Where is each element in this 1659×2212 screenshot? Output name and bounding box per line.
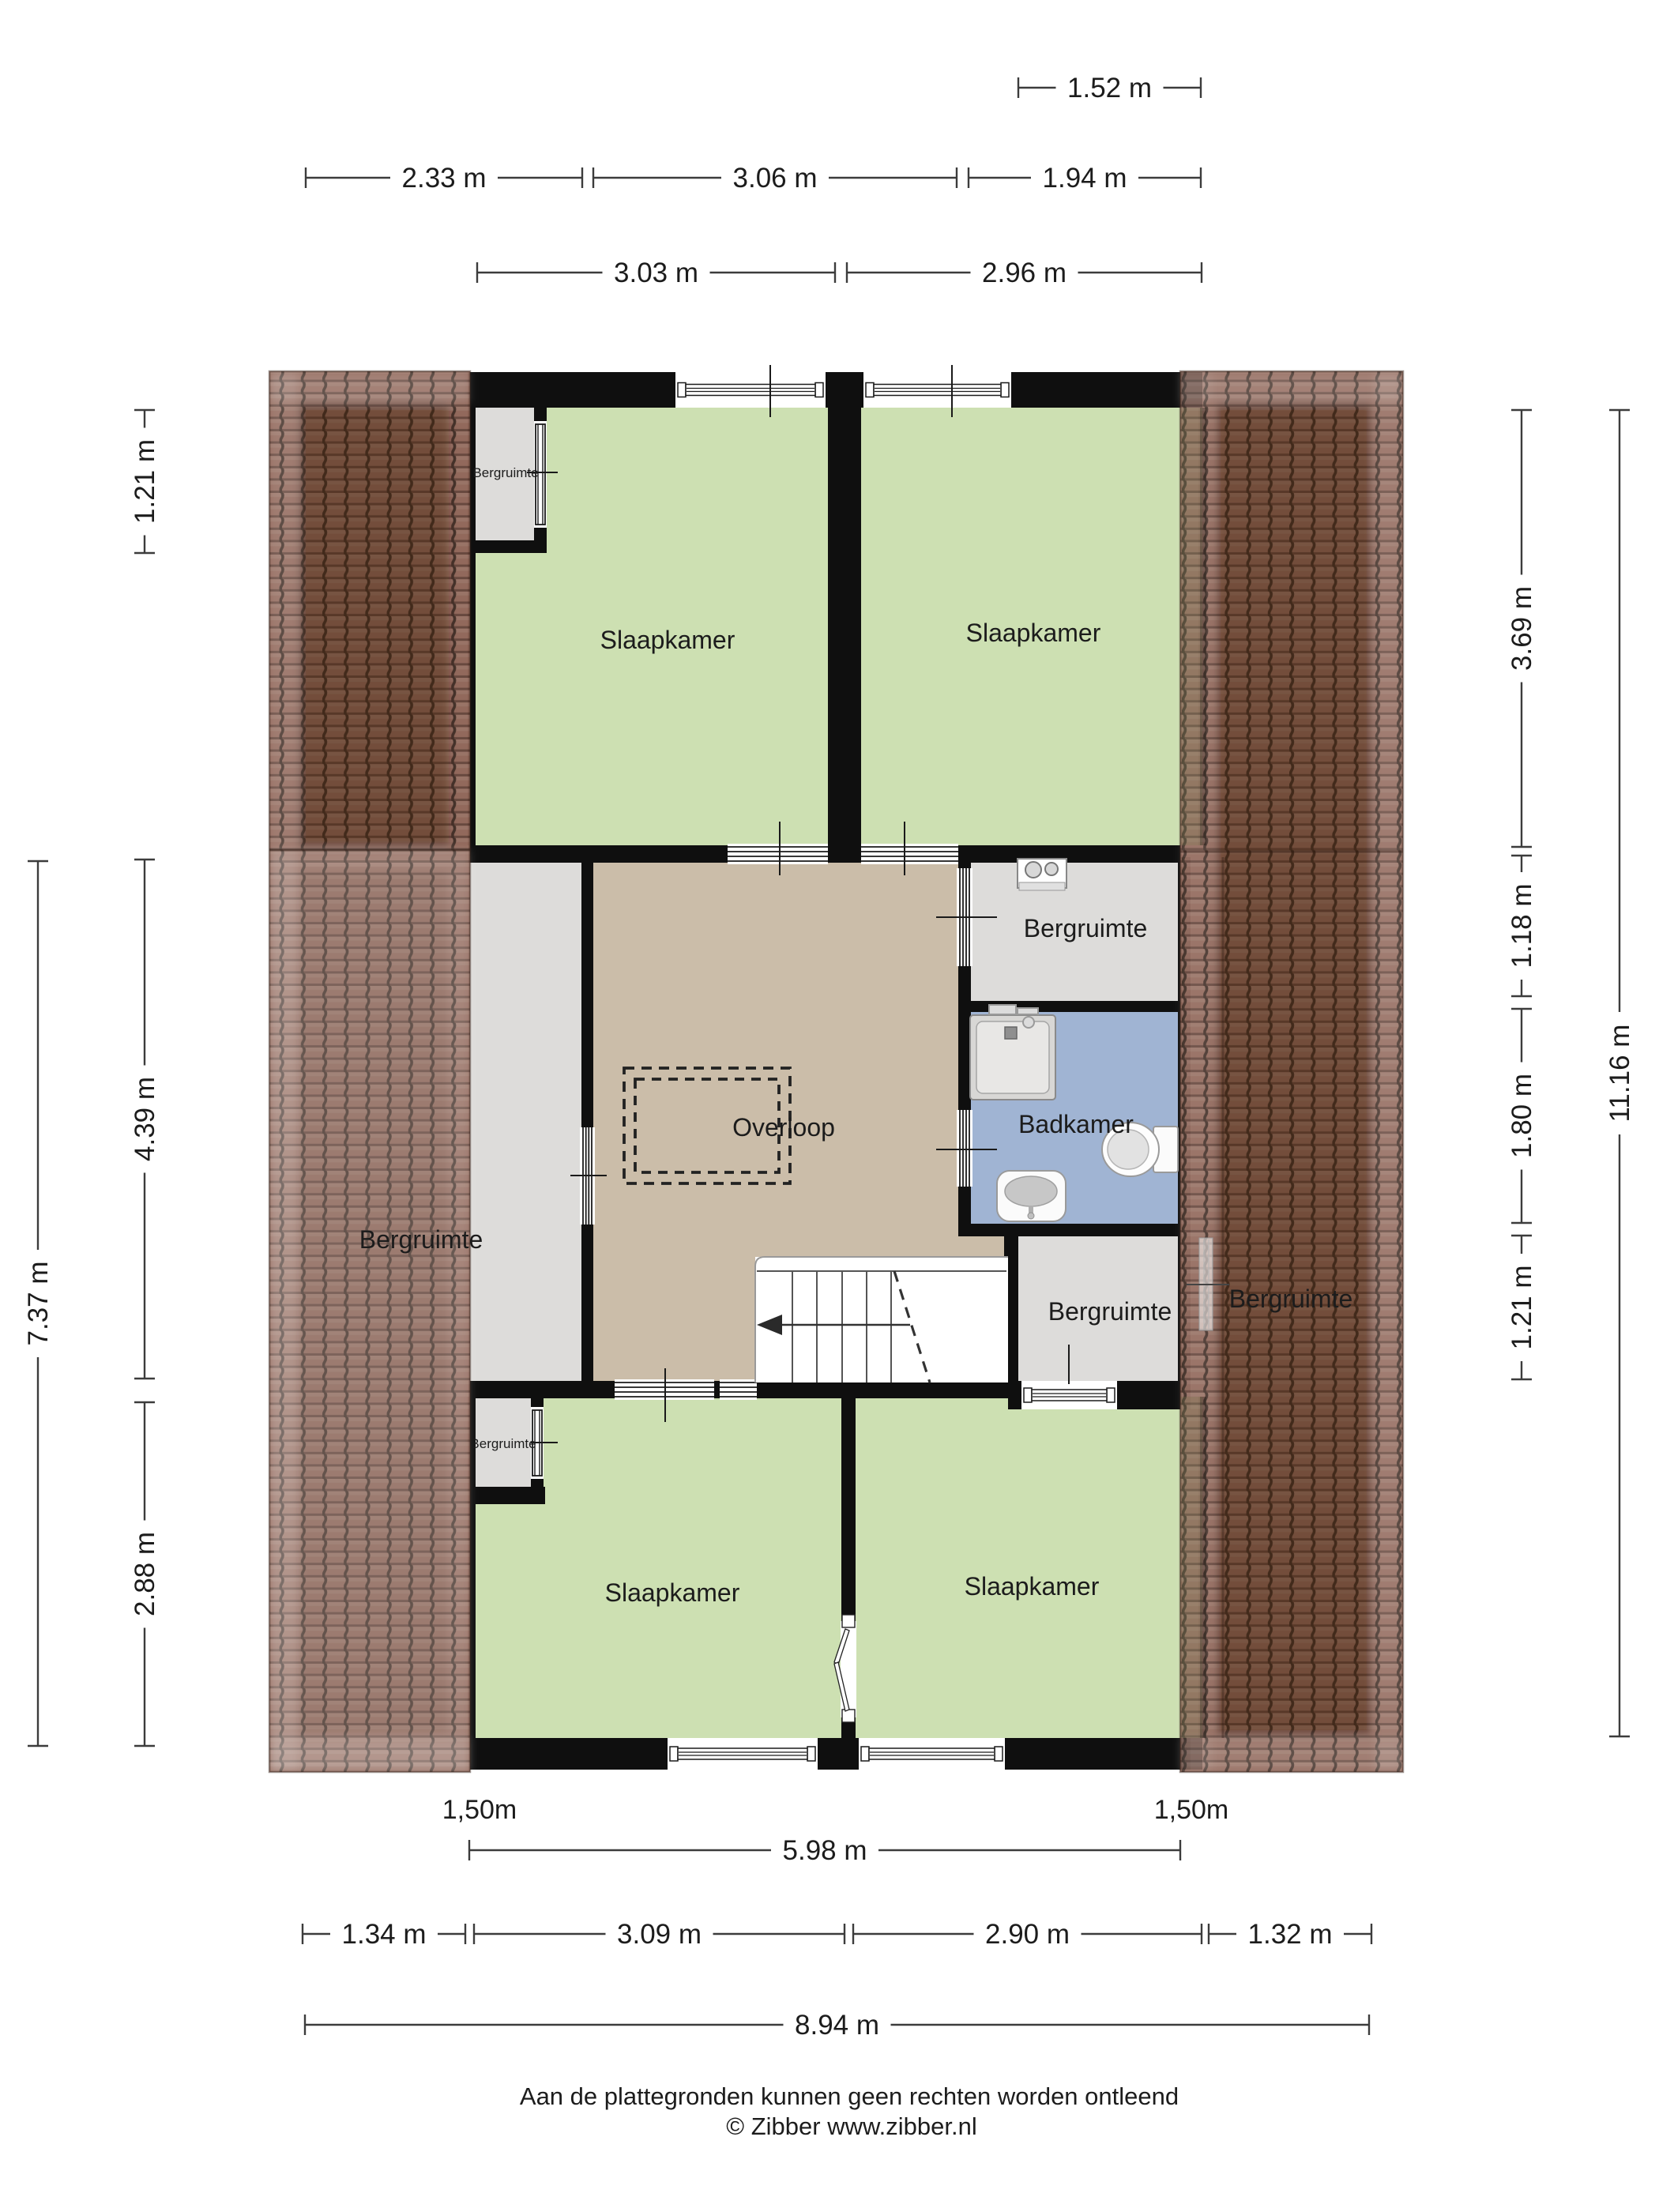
svg-text:2.90 m: 2.90 m: [985, 1919, 1070, 1950]
svg-text:Bergruimte: Bergruimte: [472, 465, 538, 480]
svg-text:Bergruimte: Bergruimte: [1229, 1285, 1353, 1313]
svg-text:1.80 m: 1.80 m: [1507, 1074, 1537, 1158]
svg-text:1,50m: 1,50m: [442, 1795, 517, 1825]
svg-text:Slaapkamer: Slaapkamer: [605, 1578, 740, 1607]
svg-text:1,50m: 1,50m: [1154, 1795, 1229, 1825]
svg-text:Bergruimte: Bergruimte: [359, 1225, 483, 1254]
svg-text:8.94 m: 8.94 m: [795, 2010, 879, 2041]
svg-text:2.96 m: 2.96 m: [982, 258, 1066, 288]
svg-text:3.03 m: 3.03 m: [614, 258, 698, 288]
svg-text:3.06 m: 3.06 m: [733, 163, 818, 194]
svg-text:1.34 m: 1.34 m: [342, 1919, 427, 1950]
svg-text:Badkamer: Badkamer: [1018, 1110, 1134, 1138]
svg-text:Bergruimte: Bergruimte: [1048, 1297, 1172, 1326]
svg-text:11.16 m: 11.16 m: [1604, 1025, 1635, 1123]
svg-text:Slaapkamer: Slaapkamer: [966, 619, 1101, 647]
svg-text:Aan de plattegronden kunnen ge: Aan de plattegronden kunnen geen rechten…: [520, 2082, 1179, 2110]
svg-text:1.21 m: 1.21 m: [1507, 1266, 1537, 1350]
svg-text:Overloop: Overloop: [732, 1113, 835, 1142]
svg-text:Slaapkamer: Slaapkamer: [600, 626, 735, 654]
svg-text:1.52 m: 1.52 m: [1067, 73, 1152, 103]
svg-text:2.33 m: 2.33 m: [402, 163, 487, 194]
svg-text:3.69 m: 3.69 m: [1507, 586, 1537, 671]
svg-text:3.09 m: 3.09 m: [617, 1919, 702, 1950]
svg-text:2.88 m: 2.88 m: [130, 1532, 160, 1616]
svg-text:Bergruimte: Bergruimte: [470, 1436, 536, 1451]
svg-text:5.98 m: 5.98 m: [783, 1835, 867, 1866]
svg-text:7.37 m: 7.37 m: [23, 1262, 54, 1346]
svg-text:1.32 m: 1.32 m: [1248, 1919, 1333, 1950]
svg-text:4.39 m: 4.39 m: [130, 1077, 160, 1161]
svg-text:1.94 m: 1.94 m: [1043, 163, 1127, 194]
svg-text:1.21 m: 1.21 m: [130, 439, 160, 524]
svg-text:Bergruimte: Bergruimte: [1024, 914, 1148, 942]
svg-text:Slaapkamer: Slaapkamer: [965, 1572, 1100, 1601]
svg-text:© Zibber www.zibber.nl: © Zibber www.zibber.nl: [726, 2112, 976, 2140]
svg-text:1.18 m: 1.18 m: [1507, 884, 1537, 969]
